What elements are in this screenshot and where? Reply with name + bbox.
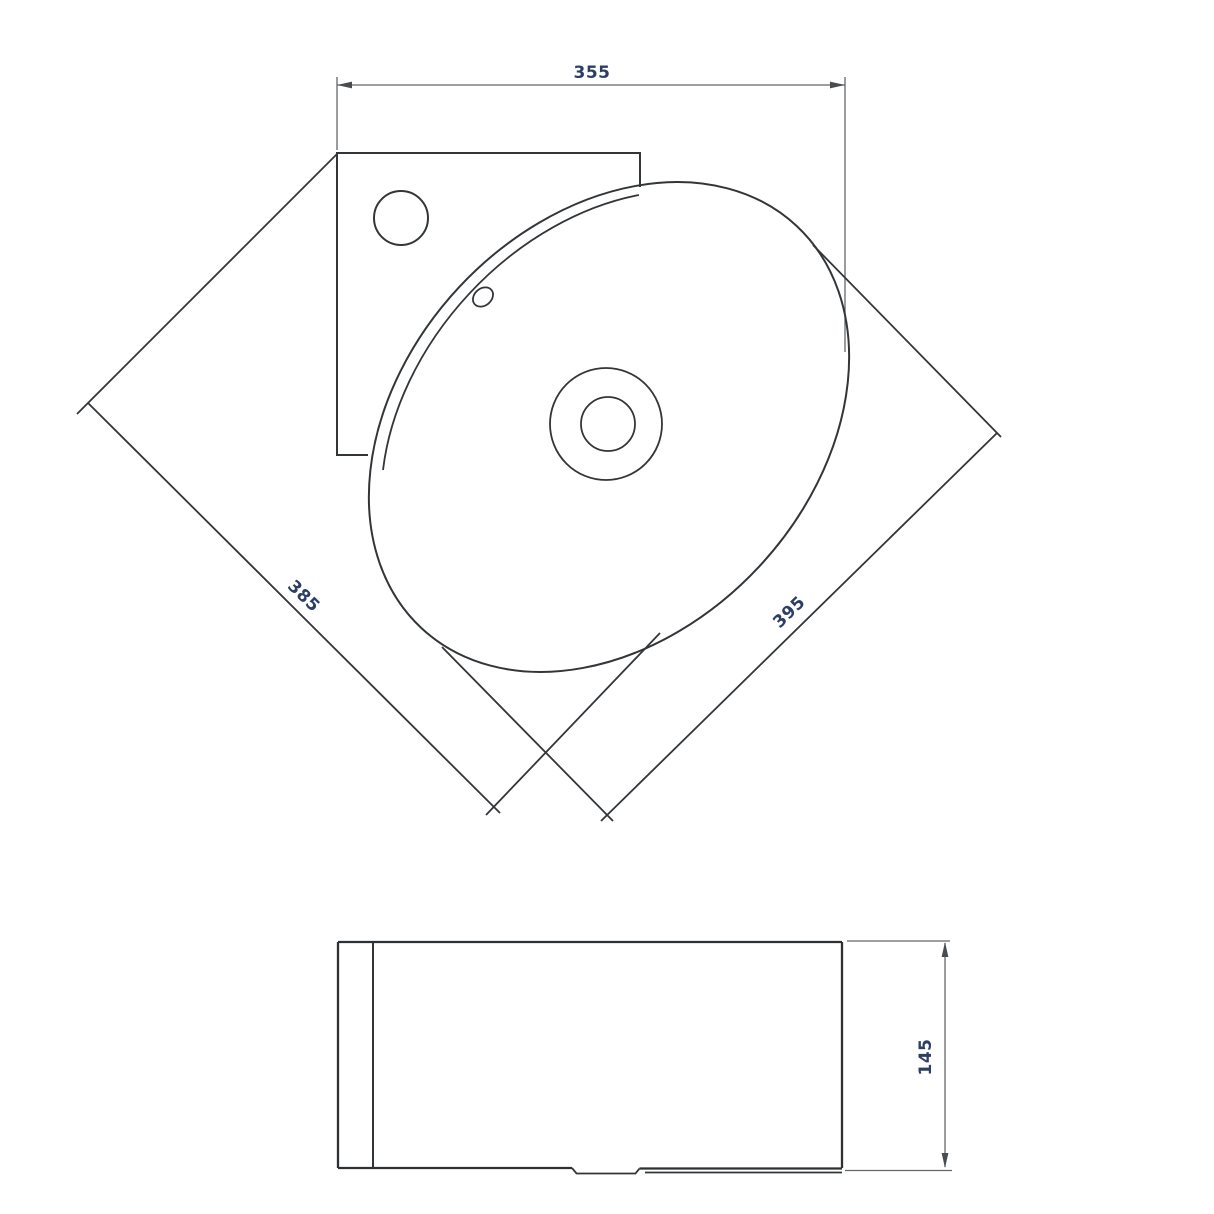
- dim-height: 145: [845, 941, 952, 1171]
- dim-label-side-left: 385: [283, 576, 324, 616]
- faucet-hole: [374, 191, 428, 245]
- body-outline: [338, 942, 842, 1174]
- edge-tangent-right: [442, 647, 613, 821]
- arrowhead-right-icon: [830, 82, 845, 89]
- technical-drawing: 355 38: [0, 0, 1214, 1214]
- drain-outer-circle: [550, 368, 662, 480]
- drawing-sheet: 355 38: [0, 0, 1214, 1214]
- edge-front-right: [601, 433, 997, 821]
- arrowhead-up-icon: [942, 942, 949, 957]
- plan-view: 355 38: [77, 63, 1001, 821]
- edge-front-left: [88, 403, 500, 813]
- body-edges: [77, 154, 1001, 821]
- overflow-hole: [469, 283, 497, 310]
- dim-label-height: 145: [916, 1039, 936, 1076]
- drain-recess: [572, 1168, 640, 1174]
- edge-back-right: [813, 245, 1001, 437]
- dim-label-side-right: 395: [769, 592, 810, 632]
- arrowhead-left-icon: [337, 82, 352, 89]
- edge-back-left: [77, 154, 337, 414]
- drain-inner-circle: [581, 397, 635, 451]
- dim-label-width: 355: [574, 63, 611, 83]
- arrowhead-down-icon: [942, 1153, 949, 1168]
- elevation-view: 145: [338, 941, 952, 1174]
- dim-overall-width: 355: [337, 63, 845, 352]
